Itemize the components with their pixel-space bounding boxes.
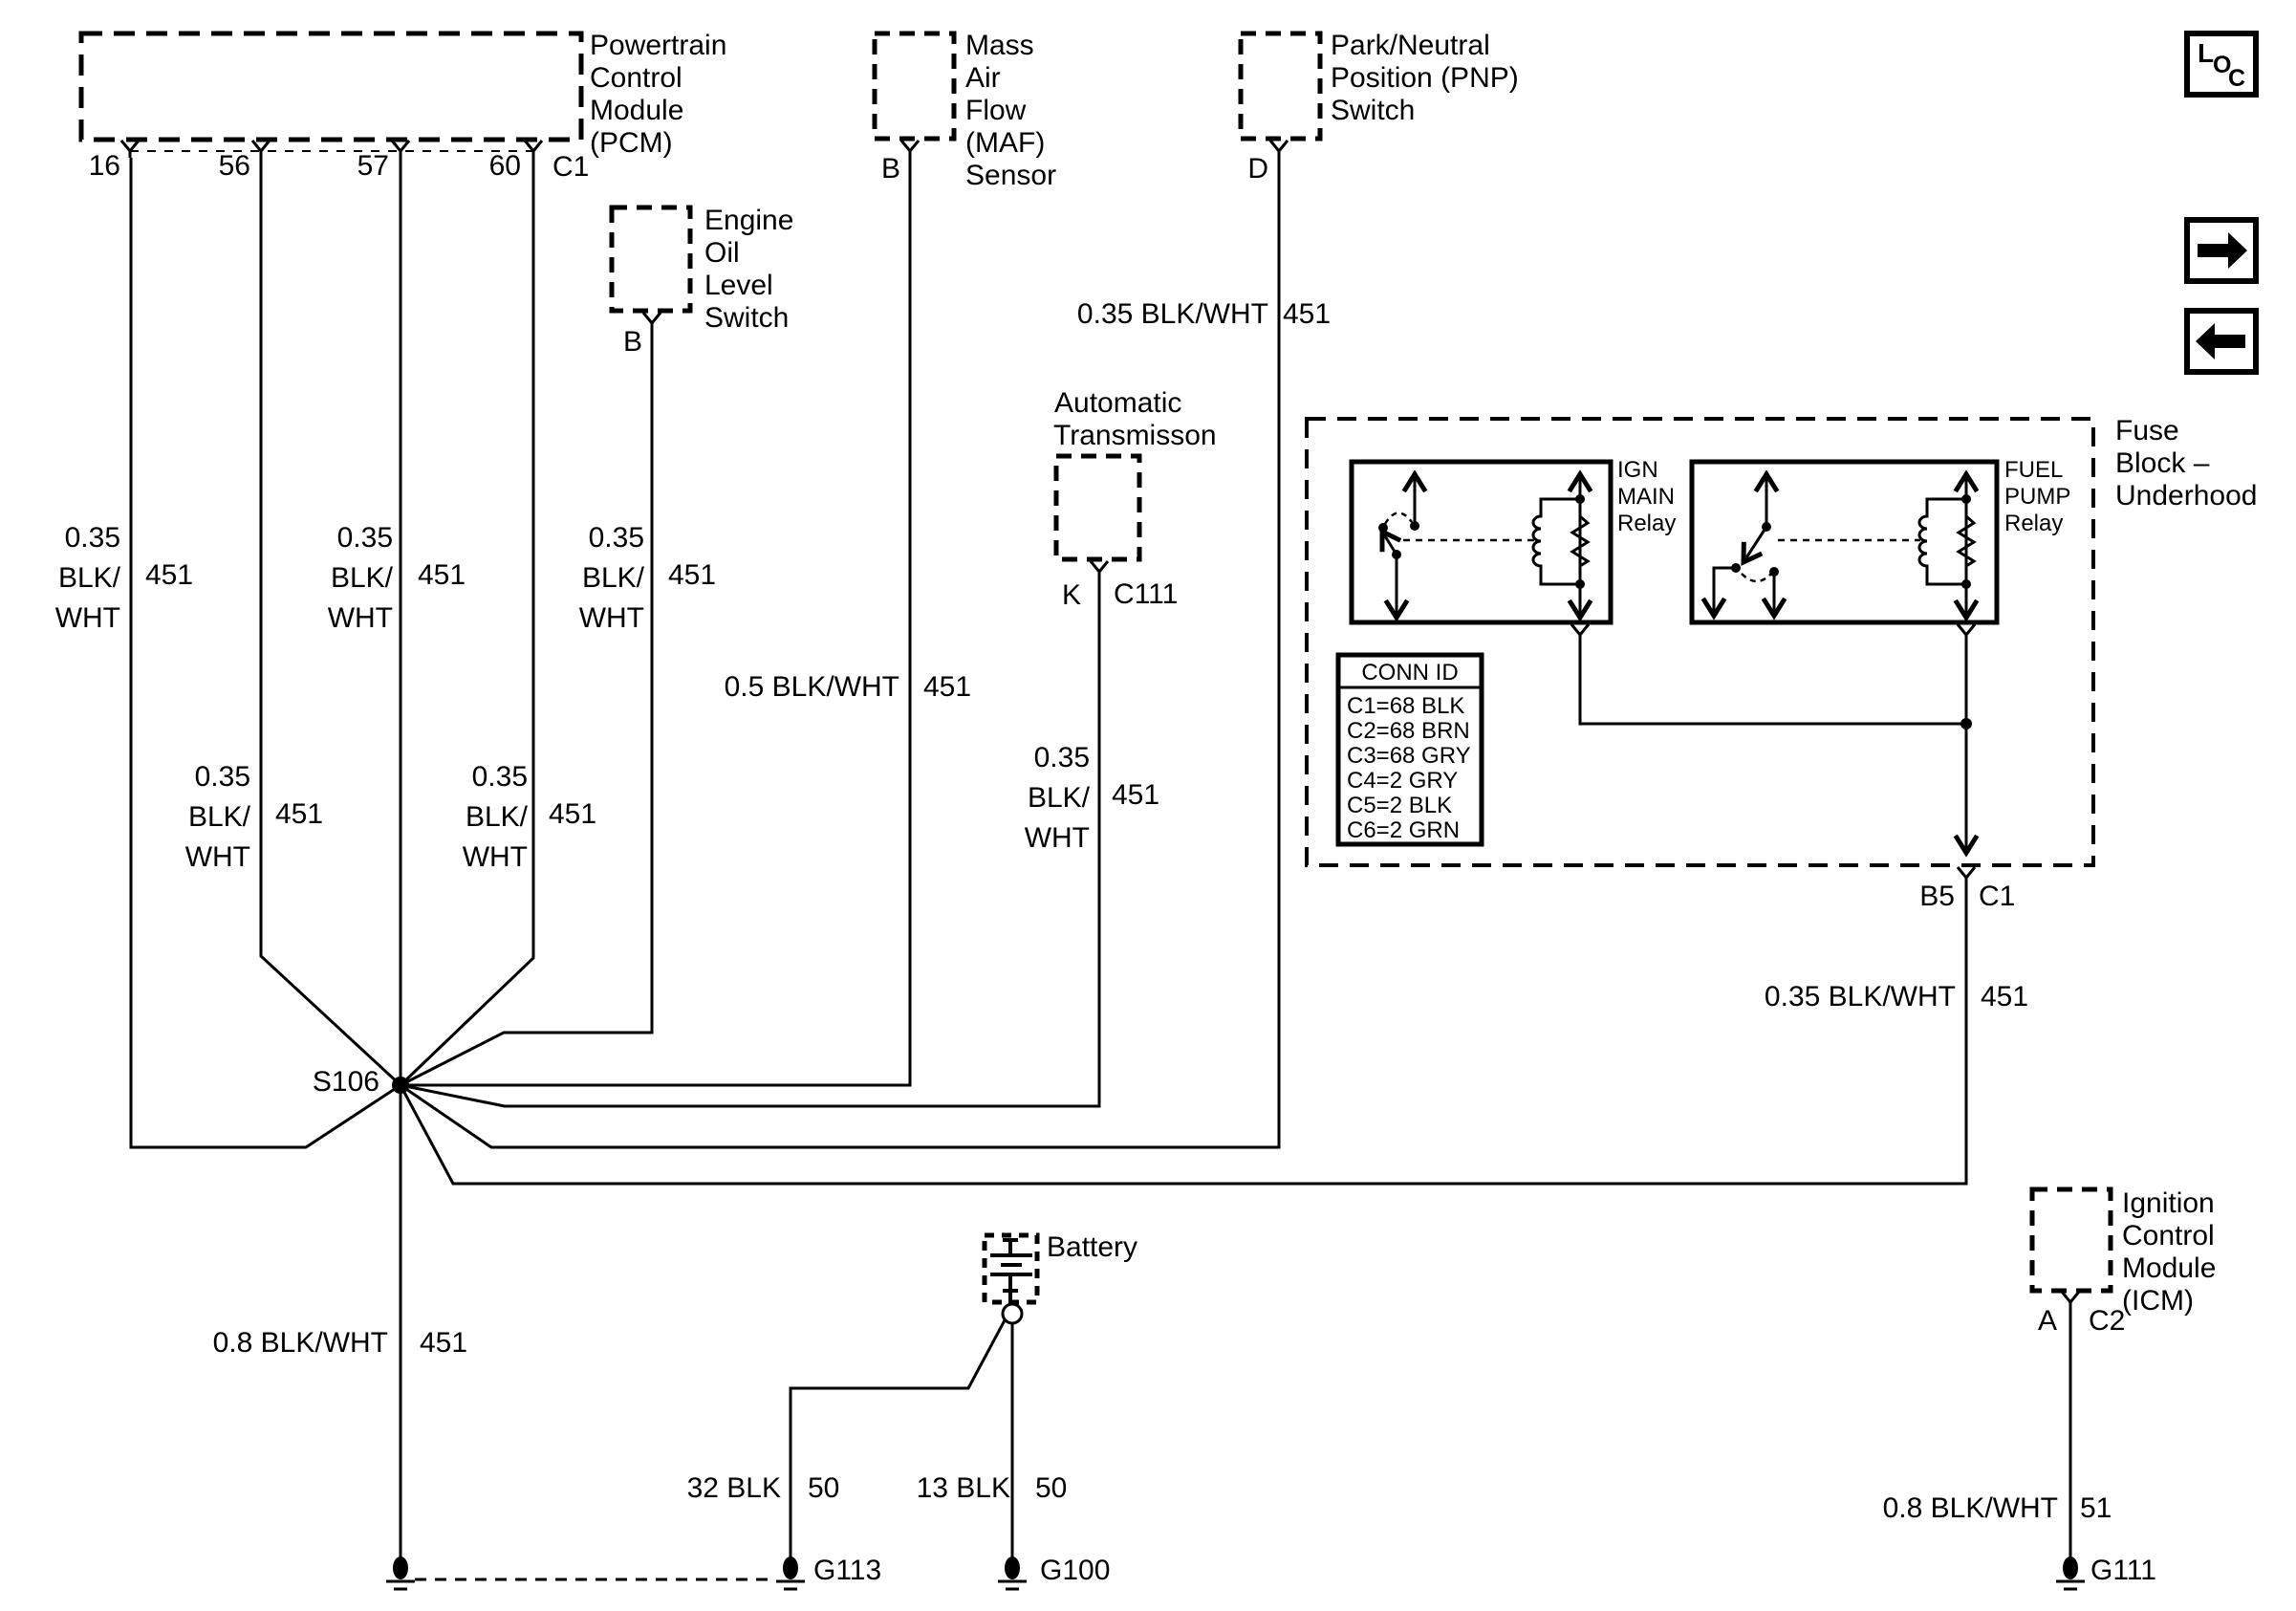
icm-box xyxy=(2032,1189,2111,1291)
ground-symbols xyxy=(386,1557,2085,1589)
maf-label-line3: Flow xyxy=(965,95,1026,127)
ign-relay-label-line2: MAIN xyxy=(1617,484,1675,511)
conn-id-row6: C6=2 GRN xyxy=(1347,817,1460,844)
conn-id-row1: C1=68 BLK xyxy=(1347,693,1464,720)
maf-pin-b: B xyxy=(824,153,900,185)
icm-label-line4: (ICM) xyxy=(2122,1285,2194,1317)
conn-id-row2: C2=68 BRN xyxy=(1347,718,1470,745)
g113-label: G113 xyxy=(813,1555,881,1587)
maf-label-line2: Air xyxy=(965,62,1001,95)
wire-13blk-circuit: 50 xyxy=(1035,1472,1067,1505)
icm-label-line1: Ignition xyxy=(2122,1187,2215,1220)
s106-ground-symbol xyxy=(386,1557,415,1589)
trans-pin-k: K xyxy=(1005,579,1081,612)
previous-page-button[interactable] xyxy=(2184,308,2259,375)
wire-k-label: 0.35BLK/WHT xyxy=(975,738,1090,859)
wire-battery-g113 xyxy=(791,1320,1005,1558)
wire-maf-circuit: 451 xyxy=(923,671,971,704)
fuel-relay-label-line3: Relay xyxy=(2004,511,2063,537)
loc-button[interactable]: L O C xyxy=(2184,31,2259,98)
oil-label-line3: Level xyxy=(704,270,773,302)
pcm-label-line1: Powertrain xyxy=(590,30,726,62)
wire-oil-label: 0.35BLK/WHT xyxy=(530,518,644,639)
wire-b5-to-s106 xyxy=(401,885,1966,1184)
fuse-exit-connector-c1: C1 xyxy=(1979,881,2015,913)
pnp-pin-d: D xyxy=(1192,153,1268,185)
battery-positive-terminal xyxy=(1003,1304,1022,1323)
conn-id-row4: C4=2 GRY xyxy=(1347,768,1458,795)
g113-ground-symbol xyxy=(776,1557,805,1589)
wire16-circuit: 451 xyxy=(145,559,193,592)
wire60-label: 0.35BLK/WHT xyxy=(413,757,528,878)
wire-maf-label: 0.5 BLK/WHT xyxy=(661,671,899,704)
wire-fuse-label: 0.35 BLK/WHT xyxy=(1717,981,1956,1013)
wire56-label: 0.35BLK/WHT xyxy=(136,757,250,878)
maf-label-line1: Mass xyxy=(965,30,1034,62)
icm-connector-c2: C2 xyxy=(2089,1305,2125,1338)
trans-box xyxy=(1056,456,1139,559)
wire-pnp-label: 0.35 BLK/WHT xyxy=(1029,298,1268,331)
pnp-label-line1: Park/Neutral xyxy=(1331,30,1490,62)
oil-label-line4: Switch xyxy=(704,302,789,335)
pcm-pin-56: 56 xyxy=(174,150,250,183)
pnp-label-line3: Switch xyxy=(1331,95,1415,127)
icm-pin-a: A xyxy=(1981,1305,2057,1338)
wire-pcm60 xyxy=(401,158,533,1085)
conn-id-row5: C5=2 BLK xyxy=(1347,793,1452,819)
maf-box xyxy=(875,33,954,139)
wire-32blk-label: 32 BLK xyxy=(638,1472,781,1505)
fuel-relay-label-line2: PUMP xyxy=(2004,484,2070,511)
trans-label-line2: Transmisson xyxy=(1053,420,1217,452)
relay-junction-dot xyxy=(1960,718,1972,729)
g100-ground-symbol xyxy=(998,1557,1027,1589)
wire16-label: 0.35BLK/WHT xyxy=(6,518,120,639)
fuel-pump-relay xyxy=(1692,462,1997,622)
conn-id-title: CONN ID xyxy=(1338,660,1482,686)
g100-label: G100 xyxy=(1040,1555,1110,1587)
wire57-label: 0.35BLK/WHT xyxy=(278,518,393,639)
wiring-diagram-page: Powertrain Control Module (PCM) 16 56 57… xyxy=(0,0,2296,1611)
wire-oil-circuit: 451 xyxy=(668,559,716,592)
pcm-box xyxy=(81,33,581,140)
battery-label: Battery xyxy=(1047,1231,1137,1264)
wire-oil xyxy=(401,330,652,1085)
wire-maf xyxy=(401,158,910,1085)
battery-symbol xyxy=(990,1240,1032,1323)
trans-connector-c111: C111 xyxy=(1114,578,1178,611)
right-arrow-icon xyxy=(2190,223,2253,278)
conn-id-row3: C3=68 GRY xyxy=(1347,743,1471,770)
wire60-circuit: 451 xyxy=(549,798,596,831)
oil-pin-b: B xyxy=(566,326,642,359)
wire-32blk-circuit: 50 xyxy=(808,1472,839,1505)
fuse-exit-pin-b5: B5 xyxy=(1878,881,1955,913)
loc-letter-c: C xyxy=(2228,65,2245,93)
maf-label-line5: Sensor xyxy=(965,160,1056,192)
icm-label-line2: Control xyxy=(2122,1220,2215,1252)
oil-label-line2: Oil xyxy=(704,237,740,270)
pnp-label-line2: Position (PNP) xyxy=(1331,62,1519,95)
g111-ground-symbol xyxy=(2056,1557,2085,1589)
wire-fuse-circuit: 451 xyxy=(1981,981,2028,1013)
pcm-pin-60: 60 xyxy=(444,150,521,183)
wire-relay-join xyxy=(1580,642,1966,724)
maf-label-line4: (MAF) xyxy=(965,127,1045,160)
fuse-block-label-line1: Fuse xyxy=(2115,415,2179,447)
pcm-pin-16: 16 xyxy=(44,150,120,183)
fuel-relay-label-line1: FUEL xyxy=(2004,457,2063,484)
pcm-connector-c1: C1 xyxy=(552,151,589,184)
wire56-circuit: 451 xyxy=(275,798,323,831)
s106-splice-dot xyxy=(392,1077,409,1094)
pnp-box xyxy=(1241,33,1320,139)
pcm-label-line4: (PCM) xyxy=(590,127,673,160)
g111-label: G111 xyxy=(2090,1555,2156,1587)
oil-label-line1: Engine xyxy=(704,205,793,237)
pcm-pin-57: 57 xyxy=(313,150,389,183)
wire-pnp-circuit: 451 xyxy=(1283,298,1331,331)
pcm-label-line2: Control xyxy=(590,62,682,95)
s106-splice-label: S106 xyxy=(284,1066,379,1099)
oil-switch-box xyxy=(612,207,690,311)
wire-pcm16 xyxy=(131,158,401,1147)
ign-relay-label-line3: Relay xyxy=(1617,511,1676,537)
wire-s106-ground-circuit: 451 xyxy=(420,1327,467,1360)
wire-k-circuit: 451 xyxy=(1112,779,1159,812)
wire57-circuit: 451 xyxy=(418,559,466,592)
fuse-block-label-line3: Underhood xyxy=(2115,480,2257,512)
wire-icm-circuit: 51 xyxy=(2080,1492,2112,1525)
ign-relay-label-line1: IGN xyxy=(1617,457,1658,484)
fuse-block-label-line2: Block – xyxy=(2115,447,2209,480)
wire-icm-label: 0.8 BLK/WHT xyxy=(1819,1492,2058,1525)
pcm-label-line3: Module xyxy=(590,95,683,127)
loc-letter-l: L xyxy=(2198,38,2214,69)
next-page-button[interactable] xyxy=(2184,217,2259,284)
wire-s106-ground-label: 0.8 BLK/WHT xyxy=(149,1327,388,1360)
trans-label-line1: Automatic xyxy=(1054,387,1181,420)
ign-main-relay xyxy=(1352,462,1611,622)
icm-label-line3: Module xyxy=(2122,1252,2216,1285)
left-arrow-icon xyxy=(2190,314,2253,369)
wire-13blk-label: 13 BLK xyxy=(867,1472,1010,1505)
